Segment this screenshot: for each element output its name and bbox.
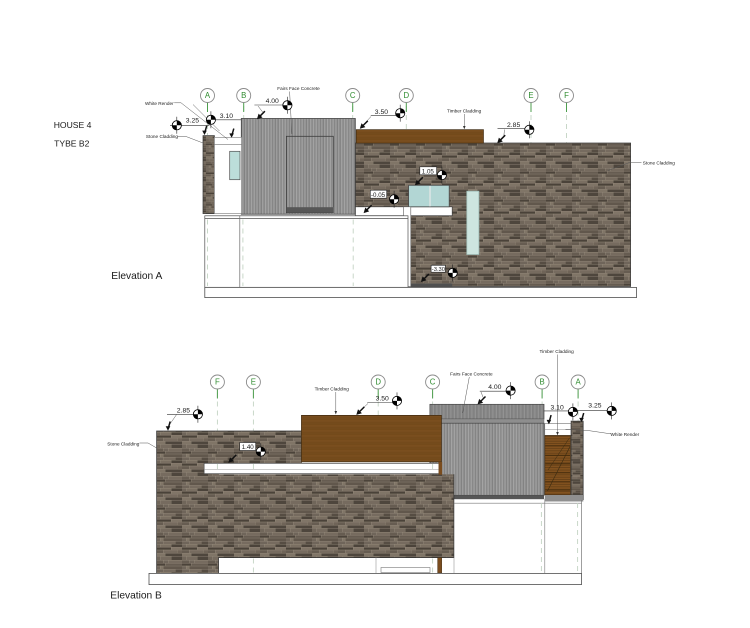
svg-text:D: D — [403, 91, 409, 100]
svg-text:C: C — [430, 378, 436, 387]
svg-text:B: B — [539, 378, 544, 387]
svg-text:White Render: White Render — [145, 101, 174, 106]
svg-text:Stone Cladding: Stone Cladding — [146, 134, 178, 139]
svg-text:E: E — [528, 91, 533, 100]
svg-text:4.00: 4.00 — [488, 384, 501, 391]
svg-text:E: E — [251, 378, 256, 387]
svg-text:2.85: 2.85 — [177, 407, 190, 414]
svg-text:F: F — [564, 91, 569, 100]
svg-text:3.50: 3.50 — [376, 396, 389, 403]
svg-text:Fairs Face Concrete: Fairs Face Concrete — [450, 372, 493, 377]
svg-text:Elevation B: Elevation B — [110, 591, 162, 602]
svg-text:3.10: 3.10 — [551, 404, 564, 411]
svg-text:Elevation A: Elevation A — [111, 271, 162, 282]
svg-text:A: A — [205, 91, 211, 100]
svg-text:2.85: 2.85 — [507, 122, 520, 129]
svg-text:1.40: 1.40 — [242, 444, 255, 451]
svg-text:3.50: 3.50 — [375, 109, 388, 116]
svg-text:C: C — [350, 91, 356, 100]
svg-text:-0.05: -0.05 — [371, 192, 386, 199]
svg-text:D: D — [375, 378, 381, 387]
svg-text:Timber Cladding: Timber Cladding — [447, 109, 482, 114]
svg-text:3.10: 3.10 — [220, 113, 233, 120]
svg-text:TYBE B2: TYBE B2 — [54, 138, 90, 148]
svg-text:F: F — [215, 378, 220, 387]
svg-text:-3.30: -3.30 — [432, 267, 445, 273]
svg-text:Timber Cladding: Timber Cladding — [540, 349, 575, 354]
svg-text:White Render: White Render — [611, 432, 640, 437]
svg-text:4.00: 4.00 — [266, 98, 279, 105]
svg-text:Stone Cladding: Stone Cladding — [107, 441, 139, 446]
svg-text:Stone Cladding: Stone Cladding — [643, 160, 675, 165]
svg-text:A: A — [575, 378, 581, 387]
svg-text:B: B — [241, 91, 246, 100]
svg-text:Fairs Face Concrete: Fairs Face Concrete — [277, 86, 320, 91]
svg-text:3.25: 3.25 — [588, 403, 601, 410]
svg-text:HOUSE 4: HOUSE 4 — [54, 120, 92, 130]
svg-text:Timber Cladding: Timber Cladding — [315, 387, 350, 392]
svg-text:1.05: 1.05 — [422, 168, 435, 175]
svg-text:3.25: 3.25 — [186, 118, 199, 125]
